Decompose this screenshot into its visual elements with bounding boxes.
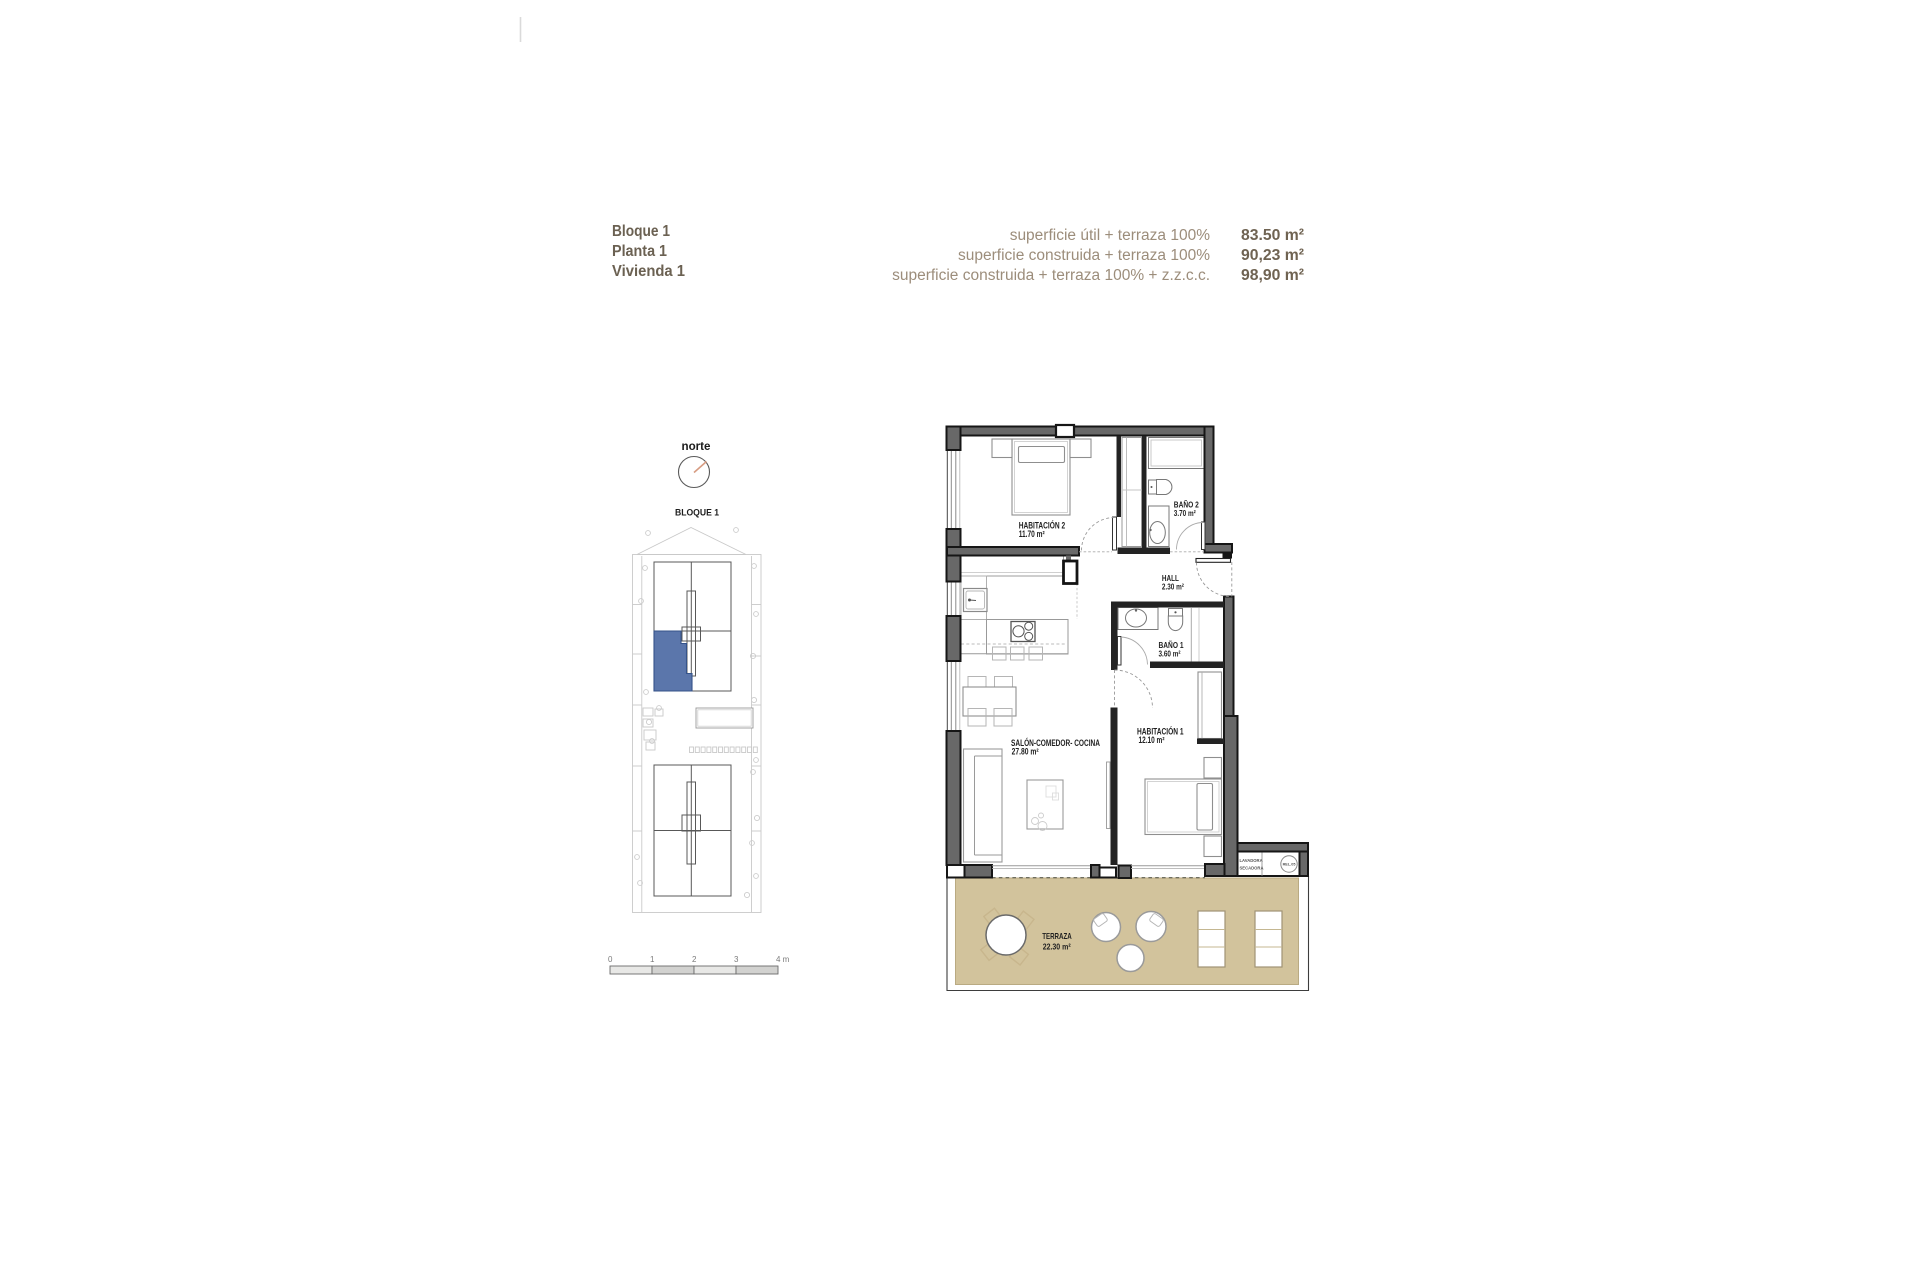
svg-text:27.80 m²: 27.80 m² [1012, 746, 1039, 756]
svg-text:90,23 m²: 90,23 m² [1241, 247, 1304, 264]
svg-text:83.50 m²: 83.50 m² [1241, 227, 1304, 244]
svg-text:REL.05: REL.05 [1283, 863, 1296, 867]
svg-text:4 m: 4 m [776, 955, 790, 964]
svg-text:3.70 m²: 3.70 m² [1174, 509, 1196, 518]
svg-text:2: 2 [692, 955, 697, 964]
svg-text:SECADORA: SECADORA [1240, 866, 1264, 871]
svg-text:3: 3 [734, 955, 739, 964]
svg-text:Planta 1: Planta 1 [612, 243, 667, 260]
svg-text:Vivienda 1: Vivienda 1 [612, 263, 685, 280]
svg-text:BLOQUE 1: BLOQUE 1 [675, 508, 720, 519]
svg-text:TERRAZA: TERRAZA [1042, 931, 1072, 941]
svg-text:1: 1 [650, 955, 655, 964]
svg-text:Bloque 1: Bloque 1 [612, 223, 670, 240]
svg-text:98,90 m²: 98,90 m² [1241, 267, 1304, 284]
svg-text:0: 0 [608, 955, 613, 964]
svg-text:3.60 m²: 3.60 m² [1159, 650, 1181, 659]
svg-text:norte: norte [682, 441, 711, 453]
svg-text:LAVADORA: LAVADORA [1240, 858, 1263, 863]
svg-text:superficie útil + terraza 100%: superficie útil + terraza 100% [1010, 227, 1211, 244]
svg-text:superficie construida + terraz: superficie construida + terraza 100% [958, 247, 1210, 264]
svg-text:superficie construida + terraz: superficie construida + terraza 100% + z… [892, 267, 1210, 284]
svg-text:2.30 m²: 2.30 m² [1162, 583, 1184, 592]
svg-text:22.30 m²: 22.30 m² [1043, 942, 1071, 952]
svg-text:11.70 m²: 11.70 m² [1019, 529, 1045, 539]
svg-text:12.10 m²: 12.10 m² [1139, 735, 1165, 745]
